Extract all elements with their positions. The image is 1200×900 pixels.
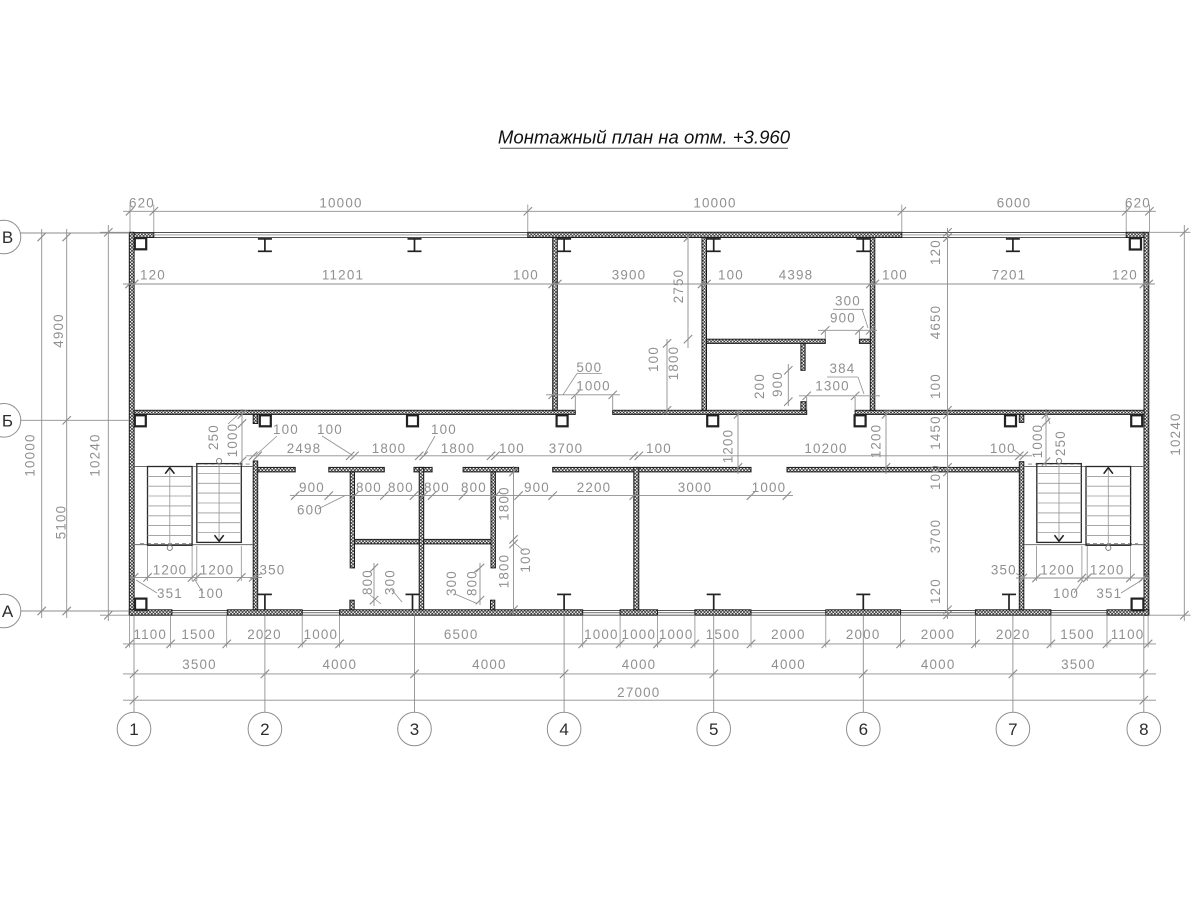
- svg-text:100: 100: [928, 464, 943, 490]
- svg-text:800: 800: [461, 480, 487, 495]
- svg-text:3000: 3000: [678, 480, 713, 495]
- svg-text:100: 100: [198, 586, 224, 601]
- svg-text:10240: 10240: [88, 433, 103, 476]
- svg-text:1000: 1000: [1030, 424, 1045, 459]
- svg-text:1200: 1200: [869, 424, 884, 459]
- svg-text:1000: 1000: [659, 627, 694, 642]
- svg-text:120: 120: [928, 578, 943, 604]
- svg-text:120: 120: [140, 268, 166, 283]
- svg-text:4: 4: [559, 720, 568, 739]
- svg-text:10240: 10240: [1168, 412, 1183, 455]
- svg-text:11201: 11201: [322, 268, 364, 283]
- svg-text:1100: 1100: [1111, 627, 1145, 642]
- svg-text:800: 800: [465, 570, 480, 596]
- svg-text:1300: 1300: [815, 379, 850, 394]
- svg-text:100: 100: [499, 441, 525, 456]
- svg-text:500: 500: [576, 360, 602, 375]
- svg-text:2200: 2200: [577, 480, 612, 495]
- svg-text:384: 384: [830, 361, 856, 376]
- svg-text:2498: 2498: [287, 441, 322, 456]
- svg-text:620: 620: [129, 196, 155, 211]
- svg-text:350: 350: [260, 563, 286, 578]
- svg-text:6: 6: [859, 720, 868, 739]
- svg-text:8: 8: [1139, 720, 1148, 739]
- svg-text:300: 300: [835, 294, 861, 309]
- svg-text:100: 100: [1053, 586, 1079, 601]
- svg-text:6500: 6500: [444, 627, 479, 642]
- svg-text:4000: 4000: [622, 657, 657, 672]
- svg-text:5100: 5100: [54, 505, 69, 540]
- svg-text:1000: 1000: [576, 378, 611, 393]
- svg-text:1800: 1800: [666, 346, 681, 381]
- svg-text:1: 1: [129, 720, 138, 739]
- svg-text:300: 300: [383, 569, 398, 595]
- svg-text:100: 100: [718, 268, 744, 283]
- svg-text:2000: 2000: [846, 627, 881, 642]
- svg-text:10000: 10000: [319, 196, 362, 211]
- svg-text:800: 800: [356, 480, 382, 495]
- svg-text:2020: 2020: [247, 627, 282, 642]
- svg-text:120: 120: [1112, 268, 1138, 283]
- svg-text:3: 3: [410, 720, 419, 739]
- svg-text:1200: 1200: [1090, 563, 1125, 578]
- svg-text:2: 2: [260, 720, 269, 739]
- svg-text:1500: 1500: [1060, 627, 1095, 642]
- svg-text:4398: 4398: [779, 268, 814, 283]
- svg-text:100: 100: [273, 422, 299, 437]
- svg-text:800: 800: [360, 569, 375, 595]
- svg-text:100: 100: [431, 422, 457, 437]
- svg-text:2000: 2000: [921, 627, 956, 642]
- svg-text:4000: 4000: [323, 657, 358, 672]
- svg-text:В: В: [2, 228, 13, 247]
- svg-text:2750: 2750: [671, 269, 686, 304]
- svg-text:7: 7: [1008, 720, 1017, 739]
- svg-text:100: 100: [882, 268, 908, 283]
- svg-text:1200: 1200: [1040, 563, 1075, 578]
- svg-text:3900: 3900: [612, 268, 647, 283]
- svg-text:100: 100: [518, 547, 533, 573]
- svg-text:4650: 4650: [928, 305, 943, 340]
- svg-text:1800: 1800: [441, 441, 476, 456]
- svg-text:10000: 10000: [693, 196, 736, 211]
- svg-text:7201: 7201: [992, 268, 1027, 283]
- svg-text:351: 351: [157, 586, 183, 601]
- svg-text:351: 351: [1096, 586, 1122, 601]
- svg-text:1500: 1500: [706, 627, 741, 642]
- svg-text:1500: 1500: [181, 627, 216, 642]
- svg-text:А: А: [2, 602, 14, 621]
- svg-text:10000: 10000: [23, 433, 38, 476]
- svg-text:900: 900: [299, 480, 325, 495]
- svg-text:27000: 27000: [617, 685, 660, 700]
- svg-text:1200: 1200: [721, 429, 736, 464]
- svg-text:1100: 1100: [133, 627, 167, 642]
- svg-text:350: 350: [991, 563, 1017, 578]
- svg-text:200: 200: [752, 373, 767, 399]
- svg-text:1200: 1200: [153, 563, 188, 578]
- svg-text:4000: 4000: [771, 657, 806, 672]
- svg-text:6000: 6000: [997, 196, 1032, 211]
- svg-text:100: 100: [646, 441, 672, 456]
- svg-text:800: 800: [424, 480, 450, 495]
- svg-text:Монтажный план на отм. +3.960: Монтажный план на отм. +3.960: [498, 127, 791, 148]
- svg-text:1000: 1000: [225, 423, 240, 458]
- svg-text:600: 600: [297, 503, 323, 518]
- svg-text:1000: 1000: [304, 627, 339, 642]
- svg-text:1200: 1200: [200, 563, 235, 578]
- svg-text:5: 5: [709, 720, 718, 739]
- svg-text:3700: 3700: [549, 441, 584, 456]
- svg-text:100: 100: [990, 441, 1016, 456]
- svg-text:10200: 10200: [804, 441, 847, 456]
- svg-text:1800: 1800: [497, 486, 512, 521]
- svg-text:250: 250: [206, 424, 221, 450]
- svg-text:120: 120: [928, 239, 943, 265]
- svg-text:100: 100: [317, 422, 343, 437]
- svg-text:900: 900: [770, 371, 785, 397]
- svg-text:3500: 3500: [182, 657, 217, 672]
- svg-text:2000: 2000: [771, 627, 806, 642]
- svg-text:100: 100: [928, 373, 943, 399]
- svg-text:1450: 1450: [928, 415, 943, 450]
- svg-text:4900: 4900: [51, 313, 66, 348]
- svg-text:Б: Б: [2, 411, 13, 430]
- svg-text:4000: 4000: [921, 657, 956, 672]
- svg-text:1000: 1000: [584, 627, 619, 642]
- svg-text:1000: 1000: [752, 480, 787, 495]
- svg-text:100: 100: [646, 346, 661, 372]
- svg-text:900: 900: [830, 311, 856, 326]
- svg-text:300: 300: [444, 570, 459, 596]
- svg-text:100: 100: [513, 268, 539, 283]
- svg-text:3700: 3700: [928, 519, 943, 554]
- svg-text:800: 800: [388, 480, 414, 495]
- svg-text:1800: 1800: [372, 441, 407, 456]
- svg-text:1800: 1800: [497, 554, 512, 589]
- svg-text:4000: 4000: [472, 657, 507, 672]
- svg-text:3500: 3500: [1061, 657, 1096, 672]
- svg-text:2020: 2020: [996, 627, 1031, 642]
- svg-text:900: 900: [524, 480, 550, 495]
- svg-text:1000: 1000: [622, 627, 657, 642]
- svg-text:620: 620: [1125, 196, 1151, 211]
- svg-text:250: 250: [1053, 430, 1068, 456]
